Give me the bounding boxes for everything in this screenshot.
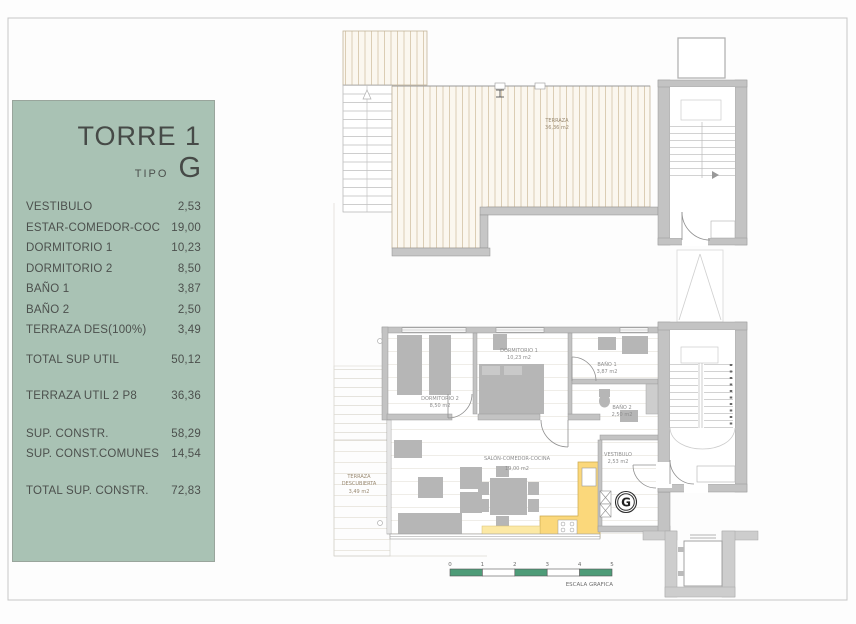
area-vestibulo: 2,53 m2 [608,459,629,465]
total-util-value: 50,12 [171,350,201,371]
room-value: 10,23 [171,238,201,259]
tipo-value: G [178,152,201,185]
scale-tick-5: 5 [610,562,614,568]
tipo-line: TIPO G [26,152,201,185]
guide-rail [678,571,684,576]
faint-exterior-stair [334,366,387,440]
elevator-overrun [678,38,725,78]
upper-staircase [343,85,392,212]
room-value: 2,53 [178,197,201,218]
label-salon: SALÓN-COMEDOR-COCINA [484,455,551,462]
kitchen-sink [582,468,596,486]
area-bano2: 2,50 m2 [612,412,633,418]
area-row: ESTAR-COMEDOR-COC 19,00 [26,218,201,239]
column-marker [378,521,383,526]
area-bano1: 3,87 m2 [597,369,618,375]
constr-row: SUP. CONSTR. 58,29 [26,424,201,445]
sofa [418,477,443,498]
area-salon: 19,00 m2 [505,466,529,472]
room-label: DORMITORIO 2 [26,259,113,280]
area-row: DORMITORIO 1 10,23 [26,238,201,259]
scale-tick-3: 3 [545,562,549,568]
total-util-label: TOTAL SUP UTIL [26,350,119,371]
area-row: BAÑO 1 3,87 [26,279,201,300]
scale-label: ESCALA GRAFICA [566,582,614,588]
door-mat [697,466,735,482]
label-vestibulo: VESTIBULO [604,452,632,458]
lower-stairwell [656,250,747,493]
chair [496,516,509,527]
room-value: 3,49 [178,320,201,341]
tipo-label: TIPO [135,168,169,180]
plan-sheet: TERRAZA 36,36 m2 [0,0,856,624]
room-areas-group: VESTIBULO 2,53 ESTAR-COMEDOR-COC 19,00 D… [26,197,201,341]
scale-tick-1: 1 [481,562,485,568]
page-title: TORRE 1 [26,121,201,152]
constr-value: 58,29 [171,424,201,445]
constr-row: SUP. CONST.COMUNES 14,54 [26,444,201,465]
total-constr-row: TOTAL SUP. CONSTR. 72,83 [26,481,201,502]
lower-plan-apartment: DORMITORIO 1 10,23 m2 DORMITORIO 2 8,50 … [334,250,758,597]
label-dormitorio1: DORMITORIO 1 [500,348,538,354]
guide-rail [678,547,684,552]
elevator-shaft-detail [643,531,758,597]
room-label: BAÑO 2 [26,300,69,321]
room-label: VESTIBULO [26,197,92,218]
sink [598,337,616,350]
type-g-marker: G [616,492,637,513]
label-terraza: TERRAZA [544,118,569,124]
room-label: DORMITORIO 1 [26,238,113,259]
sideboard [394,440,422,458]
terraza-util-row: TERRAZA UTIL 2 P8 36,36 [26,386,201,407]
scale-bar: 0 1 2 3 4 5 ESCALA GRAFICA [448,562,614,588]
area-row: DORMITORIO 2 8,50 [26,259,201,280]
terraza-util-value: 36,36 [171,386,201,407]
total-constr-value: 72,83 [171,481,201,502]
total-util-group: TOTAL SUP UTIL 50,12 [26,350,201,371]
total-constr-group: TOTAL SUP. CONSTR. 72,83 [26,481,201,502]
dining-table [490,478,527,515]
upper-stairwell [658,38,747,246]
wardrobe [397,335,422,395]
area-terraza: 36,36 m2 [545,125,569,131]
scale-tick-4: 4 [578,562,582,568]
summary-panel: TORRE 1 TIPO G VESTIBULO 2,53 ESTAR-COME… [12,100,215,562]
scale-tick-0: 0 [448,562,452,568]
pillow [504,366,522,375]
chair [478,499,489,512]
room-label: TERRAZA DES(100%) [26,320,146,341]
area-row: BAÑO 2 2,50 [26,300,201,321]
label-terraza-desc-1: TERRAZA [346,474,371,480]
terrace-door-notch [495,83,505,89]
bathtub [622,336,648,354]
terraza-util-group: TERRAZA UTIL 2 P8 36,36 [26,386,201,407]
area-row: TERRAZA DES(100%) 3,49 [26,320,201,341]
terrace-door-notch [535,83,545,89]
area-dormitorio2: 8,50 m2 [430,403,451,409]
terrace-deck [392,86,650,248]
room-value: 2,50 [178,300,201,321]
cooktop [558,520,577,534]
label-dormitorio2: DORMITORIO 2 [421,396,459,402]
label-terraza-desc-2: DESCUBIERTA [342,481,377,487]
terraza-util-label: TERRAZA UTIL 2 P8 [26,386,137,407]
toilet-bowl [599,395,610,408]
room-label: BAÑO 1 [26,279,69,300]
terrace-hatch-block [343,31,427,85]
duct-column [600,491,611,517]
area-terraza-desc: 3,49 m2 [349,489,370,495]
constr-value: 14,54 [171,444,201,465]
room-value: 8,50 [178,259,201,280]
label-bano1: BAÑO 1 [597,361,616,368]
area-dormitorio1: 10,23 m2 [507,355,531,361]
label-bano2: BAÑO 2 [612,404,631,411]
total-constr-label: TOTAL SUP. CONSTR. [26,481,149,502]
upper-plan-terrace: TERRAZA 36,36 m2 [343,31,747,256]
roof-light [677,250,723,322]
terraza-descubierta-area [334,440,390,556]
elevator-car [684,541,722,586]
room-label: ESTAR-COMEDOR-COC [26,218,160,239]
constr-label: SUP. CONSTR. [26,424,109,445]
room-value: 19,00 [171,218,201,239]
chair [528,499,539,512]
type-g-letter: G [621,496,631,510]
pillow [482,366,500,375]
wardrobe [429,335,451,395]
area-row: VESTIBULO 2,53 [26,197,201,218]
scale-tick-2: 2 [513,562,517,568]
constr-group: SUP. CONSTR. 58,29 SUP. CONST.COMUNES 14… [26,424,201,465]
door-mat [711,221,735,238]
room-value: 3,87 [178,279,201,300]
total-util-row: TOTAL SUP UTIL 50,12 [26,350,201,371]
constr-label: SUP. CONST.COMUNES [26,444,159,465]
chair [478,482,489,495]
chair [528,482,539,495]
